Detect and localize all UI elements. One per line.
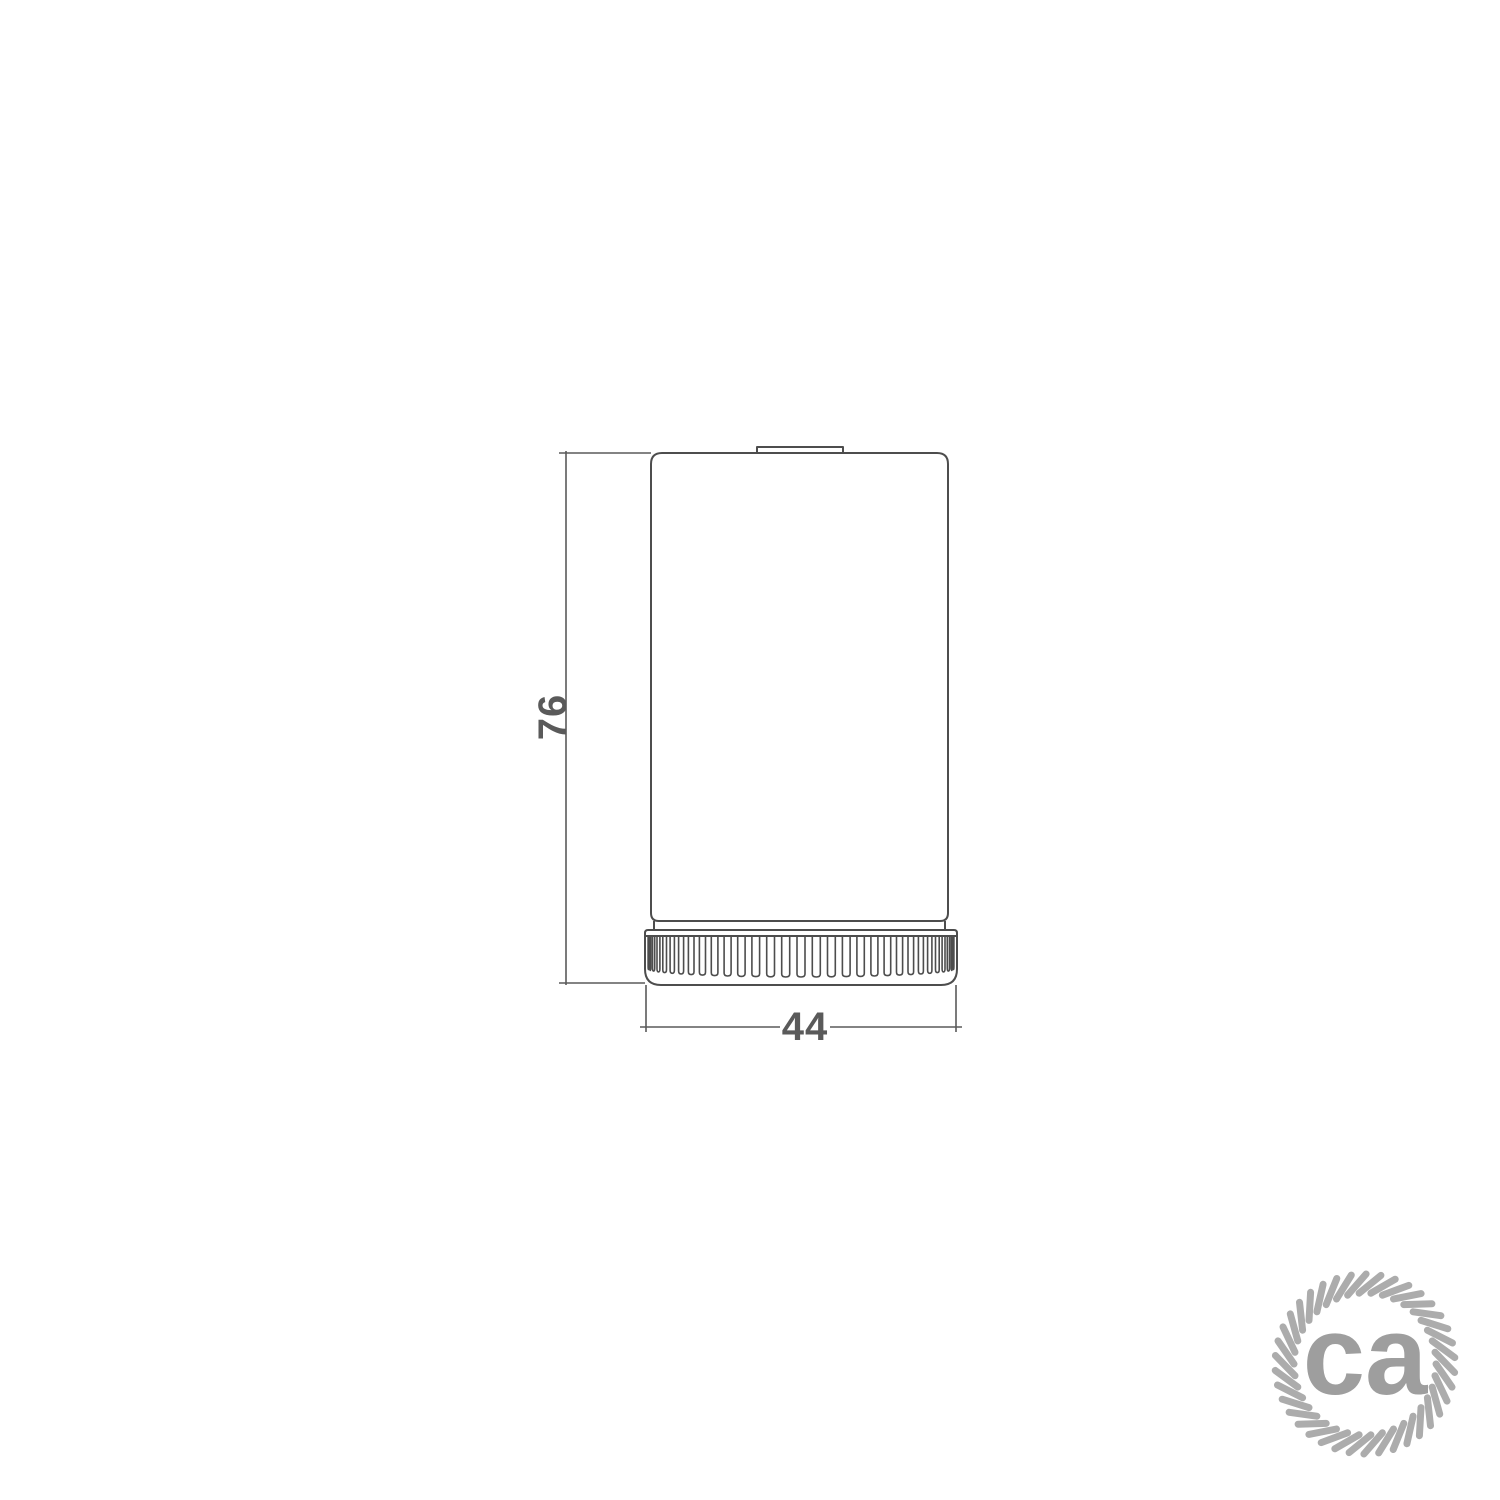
brand-logo: ca — [1275, 1274, 1455, 1454]
width-dimension-label: 44 — [782, 1005, 829, 1049]
technical-drawing-canvas: 76 44 ca — [0, 0, 1500, 1500]
logo-text: ca — [1303, 1293, 1428, 1418]
height-dimension-label: 76 — [531, 694, 575, 741]
page-canvas: 76 44 ca — [0, 0, 1500, 1500]
object-outline-group — [645, 447, 957, 985]
lampholder-body — [651, 453, 948, 921]
